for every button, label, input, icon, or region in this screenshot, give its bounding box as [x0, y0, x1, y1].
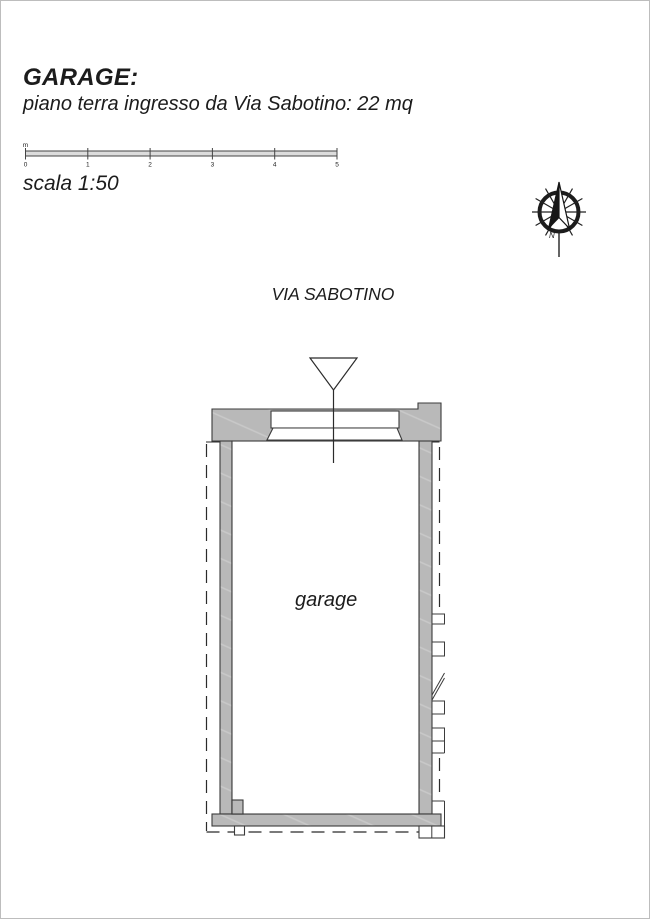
- door-opening-outer: [271, 411, 399, 428]
- door-opening-splay: [267, 428, 402, 440]
- entrance-triangle-icon: [310, 358, 357, 390]
- floorplan-page: m 0 1 2 3 4 5 N: [0, 0, 650, 919]
- scale-tick-label: 1: [86, 162, 90, 169]
- plan-drawing: m 0 1 2 3 4 5 N: [1, 1, 650, 919]
- stair-rung: [432, 728, 445, 741]
- scale-tick-label: 4: [273, 162, 277, 169]
- scale-bar: [26, 148, 338, 160]
- left-wall: [220, 441, 232, 814]
- garage-door-opening: [267, 411, 402, 440]
- compass-rose-icon: N: [532, 182, 586, 257]
- page-title: GARAGE:: [23, 64, 138, 92]
- bottom-left-pillar-detail: [235, 826, 245, 835]
- garage-interior: [232, 441, 419, 814]
- stair-rung: [432, 701, 445, 714]
- page-subtitle: piano terra ingresso da Via Sabotino: 22…: [23, 93, 413, 116]
- right-wall: [419, 441, 432, 814]
- scale-tick-label: 3: [211, 162, 215, 169]
- stair-break-line: [432, 678, 445, 700]
- stair-break-line: [432, 673, 445, 695]
- stair-rung: [432, 642, 445, 656]
- room-label: garage: [295, 589, 357, 612]
- stair-rung: [432, 614, 445, 624]
- street-label: VIA SABOTINO: [233, 284, 433, 305]
- scale-tick-label: 2: [148, 162, 152, 169]
- scale-tick-label: 0: [24, 162, 28, 169]
- scale-bar-band: [26, 151, 338, 156]
- scale-tick-label: 5: [335, 162, 339, 169]
- compass-north-label: N: [549, 231, 555, 240]
- scale-label: scala 1:50: [23, 172, 119, 196]
- stair-detail: [432, 614, 445, 753]
- bottom-left-wall-step-overlay: [232, 800, 243, 814]
- scale-unit-label: m: [23, 142, 28, 149]
- bottom-wall: [212, 814, 441, 826]
